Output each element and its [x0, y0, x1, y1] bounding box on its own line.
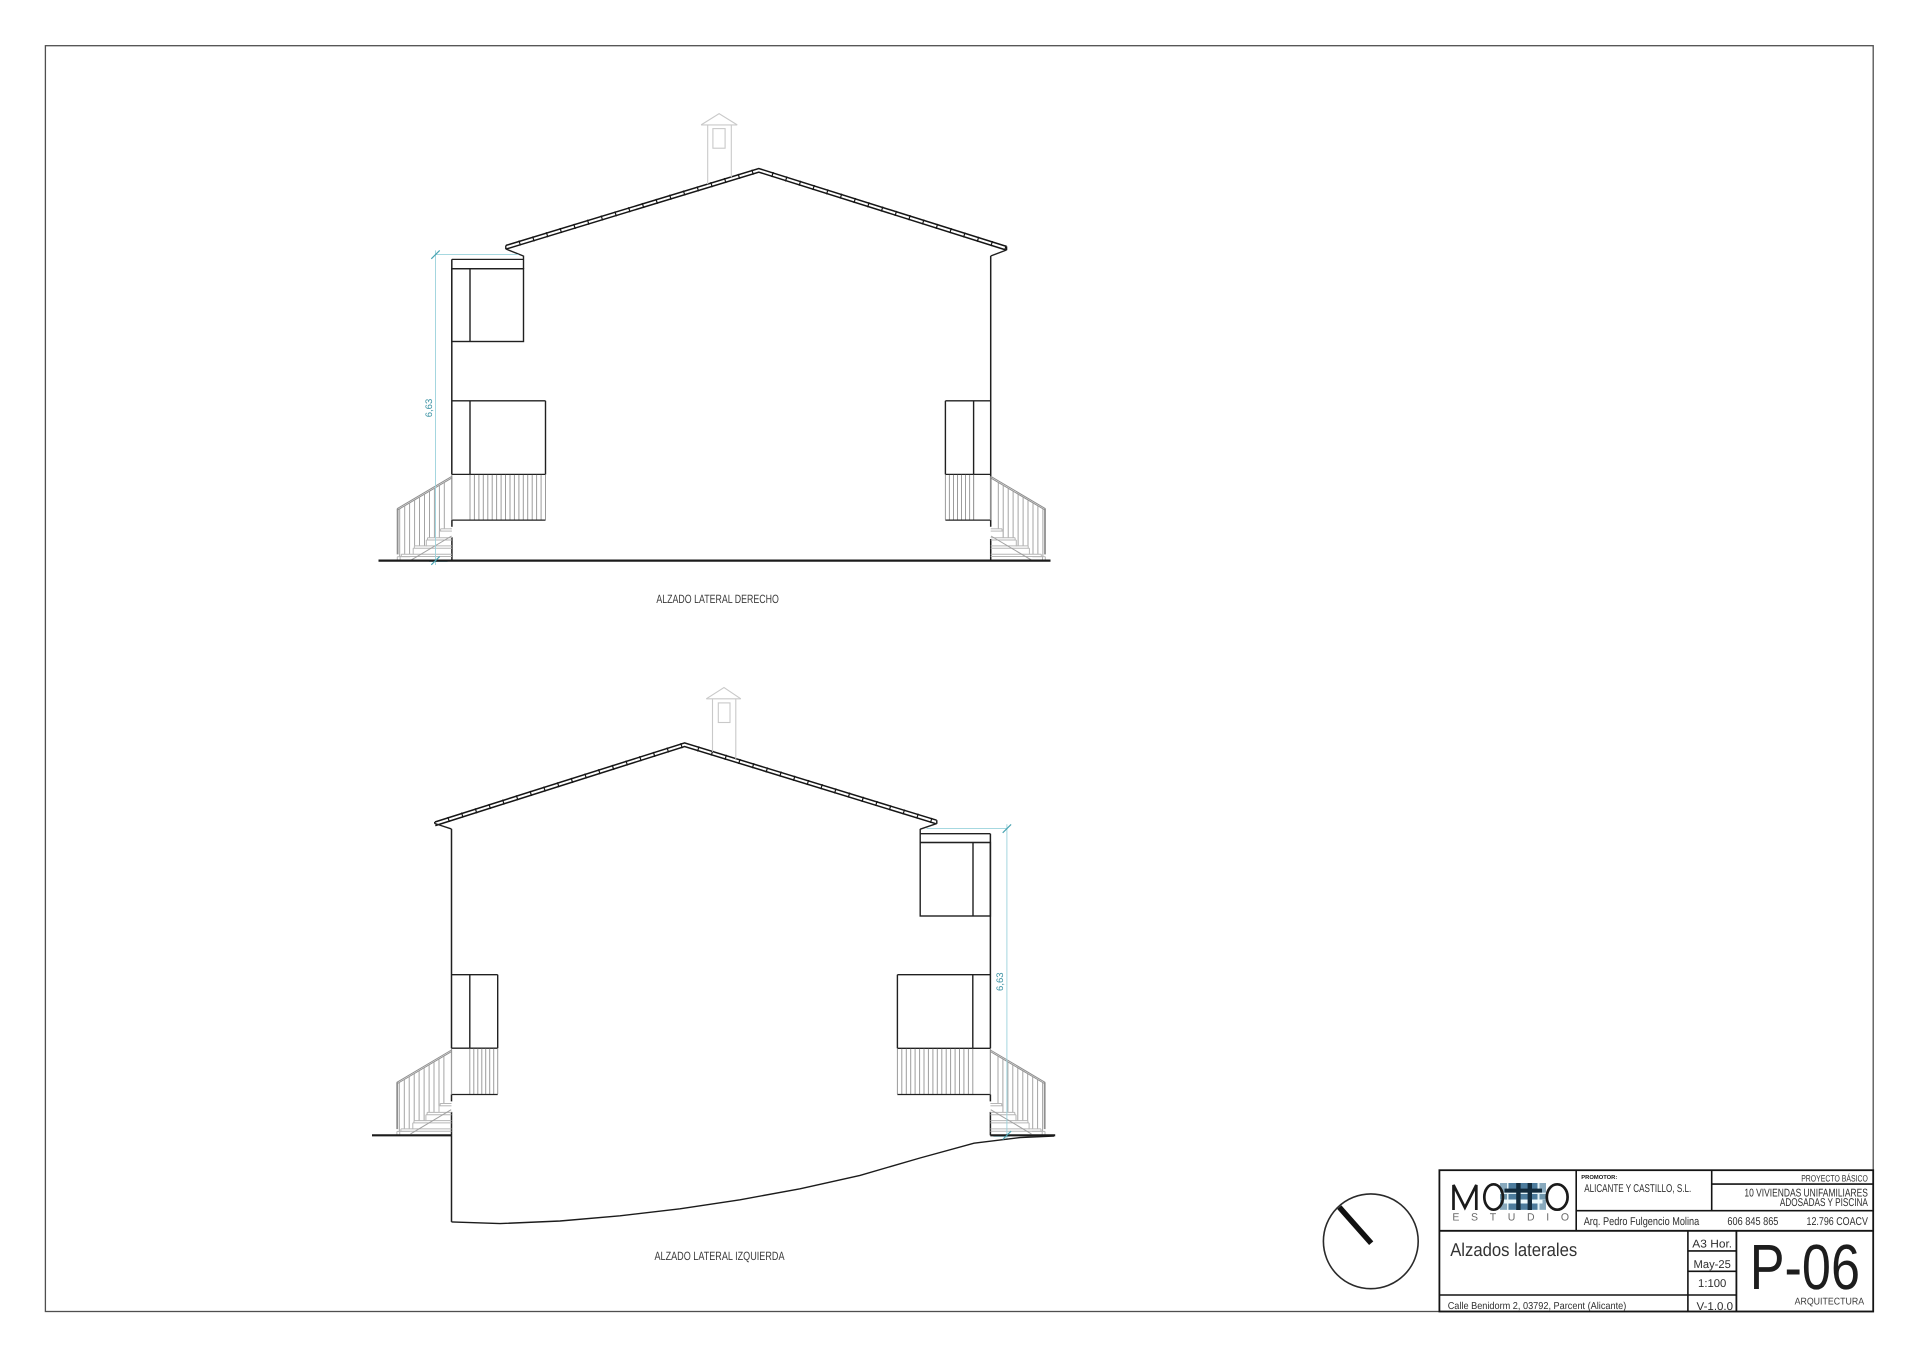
- svg-text:A3 Hor.: A3 Hor.: [1692, 1239, 1732, 1251]
- svg-text:Arq. Pedro Fulgencio Molina: Arq. Pedro Fulgencio Molina: [1584, 1216, 1700, 1228]
- svg-text:ARQUITECTURA: ARQUITECTURA: [1795, 1296, 1865, 1307]
- svg-text:ADOSADAS Y PISCINA: ADOSADAS Y PISCINA: [1780, 1197, 1868, 1209]
- svg-text:ALICANTE Y CASTILLO, S.L.: ALICANTE Y CASTILLO, S.L.: [1584, 1183, 1691, 1195]
- svg-text:Calle Benidorm 2, 03792, Parce: Calle Benidorm 2, 03792, Parcent (Alican…: [1448, 1301, 1627, 1312]
- svg-text:ALZADO LATERAL IZQUIERDA: ALZADO LATERAL IZQUIERDA: [655, 1249, 785, 1263]
- svg-text:ALZADO LATERAL DERECHO: ALZADO LATERAL DERECHO: [656, 592, 779, 606]
- svg-text:1:100: 1:100: [1698, 1278, 1726, 1290]
- svg-text:6,63: 6,63: [424, 399, 435, 418]
- svg-text:May-25: May-25: [1694, 1259, 1731, 1271]
- svg-text:PROYECTO BÁSICO: PROYECTO BÁSICO: [1801, 1174, 1868, 1184]
- svg-text:12.796 COACV: 12.796 COACV: [1807, 1216, 1869, 1228]
- svg-text:PROMOTOR:: PROMOTOR:: [1581, 1174, 1617, 1181]
- svg-text:6,63: 6,63: [995, 972, 1006, 991]
- svg-text:Alzados laterales: Alzados laterales: [1450, 1239, 1577, 1260]
- svg-text:606 845 865: 606 845 865: [1727, 1216, 1778, 1228]
- svg-text:V-1.0.0: V-1.0.0: [1697, 1301, 1734, 1313]
- svg-text:P-06: P-06: [1750, 1231, 1860, 1303]
